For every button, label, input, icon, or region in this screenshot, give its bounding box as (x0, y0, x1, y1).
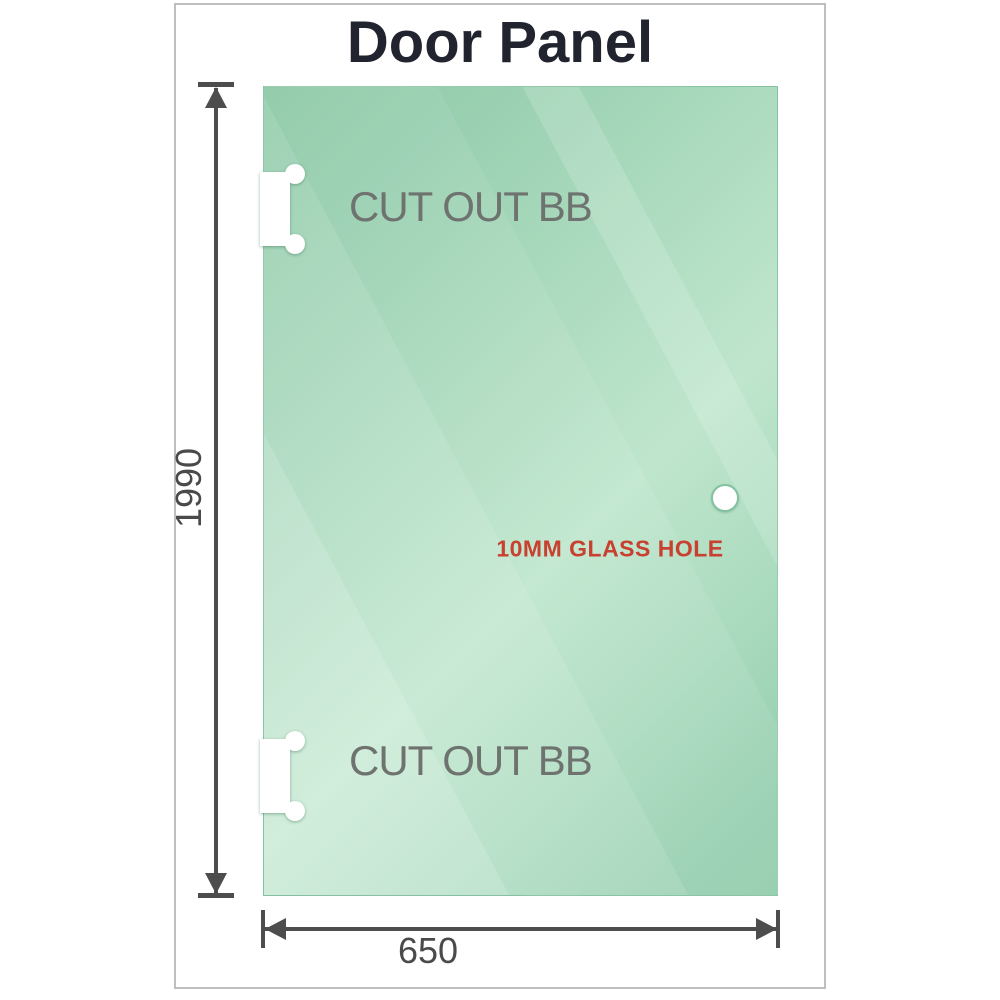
height-dimension-label: 1990 (168, 448, 210, 528)
page-title: Door Panel (174, 14, 826, 72)
glass-hole-label: 10MM GLASS HOLE (496, 536, 723, 563)
width-dimension-label: 650 (398, 930, 458, 972)
hinge-cutout-bottom (260, 727, 308, 825)
glass-hole (711, 484, 739, 512)
diagram-canvas: Door Panel CUT OUT BB CUT OUT BB 10MM GL… (0, 0, 1000, 1000)
cutout-label-bottom: CUT OUT BB (349, 738, 592, 784)
cutout-label-top: CUT OUT BB (349, 184, 592, 230)
hinge-cutout-top (260, 160, 308, 258)
